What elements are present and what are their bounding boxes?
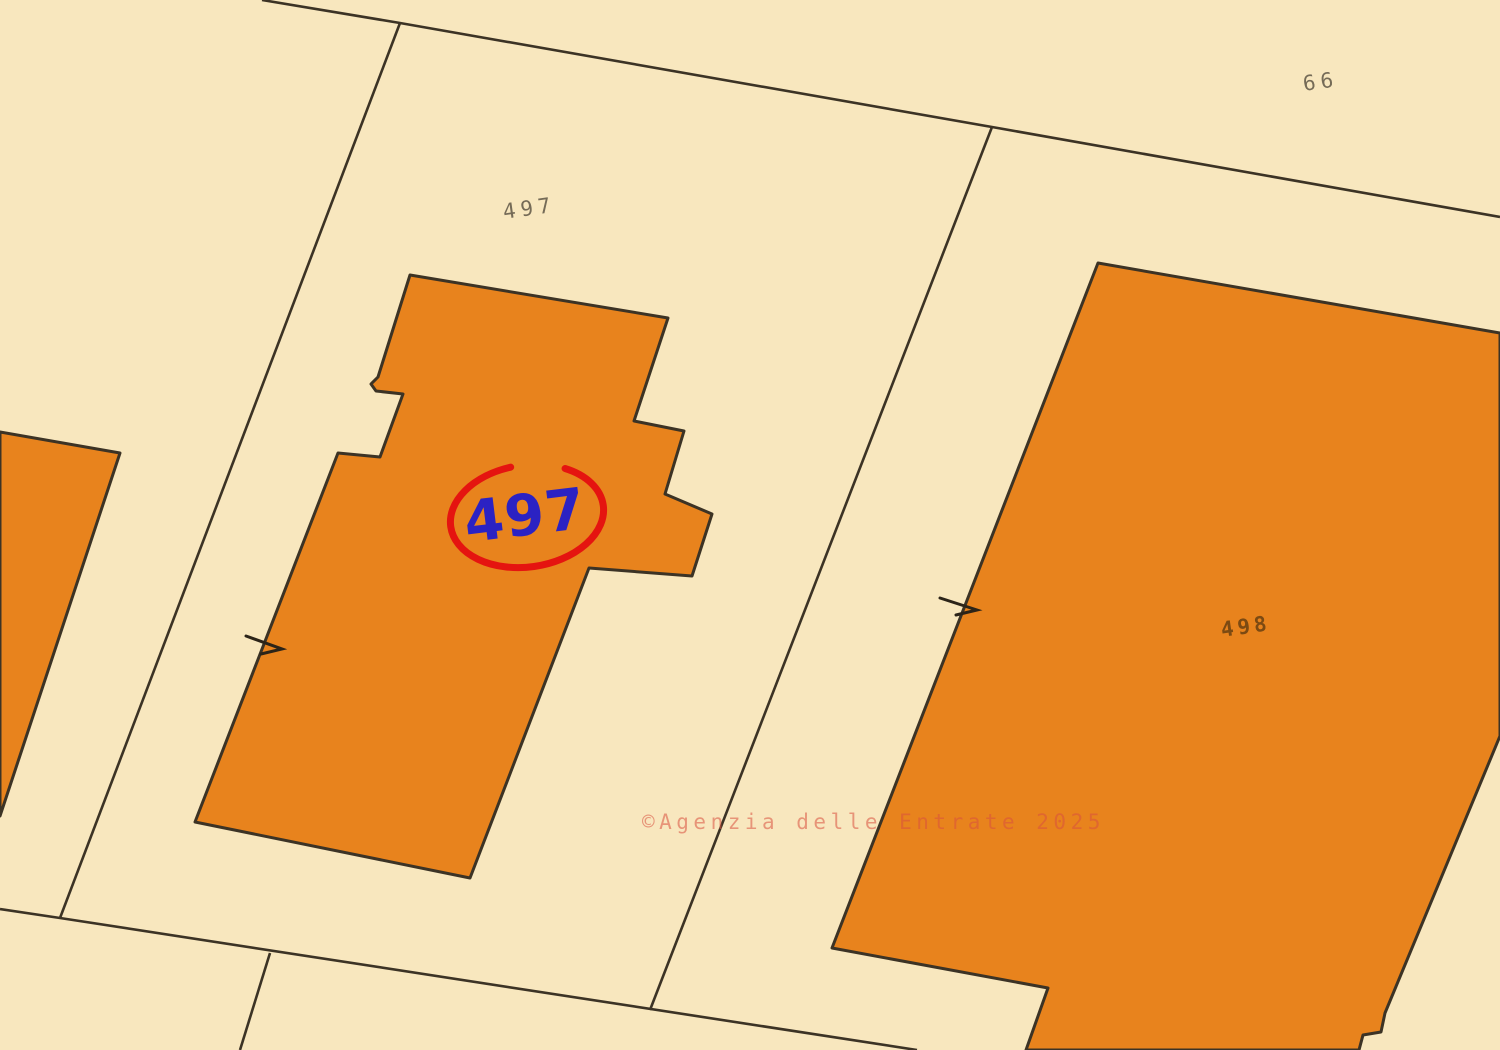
cadastral-map-viewport[interactable]: 497 66 498 497 ©Agenzia delle Entrate 20…: [0, 0, 1500, 1050]
parcel-label-66: 66: [1301, 67, 1339, 96]
building-497-footprint[interactable]: [195, 275, 712, 878]
boundary-line-bottom: [0, 909, 917, 1050]
map-canvas[interactable]: [0, 0, 1500, 1050]
boundary-line-bottom-left-branch: [240, 953, 270, 1050]
boundary-line-top: [262, 0, 1500, 217]
building-left-edge-footprint[interactable]: [0, 432, 120, 816]
agency-watermark: ©Agenzia delle Entrate 2025: [642, 810, 1105, 834]
building-498-footprint[interactable]: [832, 263, 1500, 1050]
